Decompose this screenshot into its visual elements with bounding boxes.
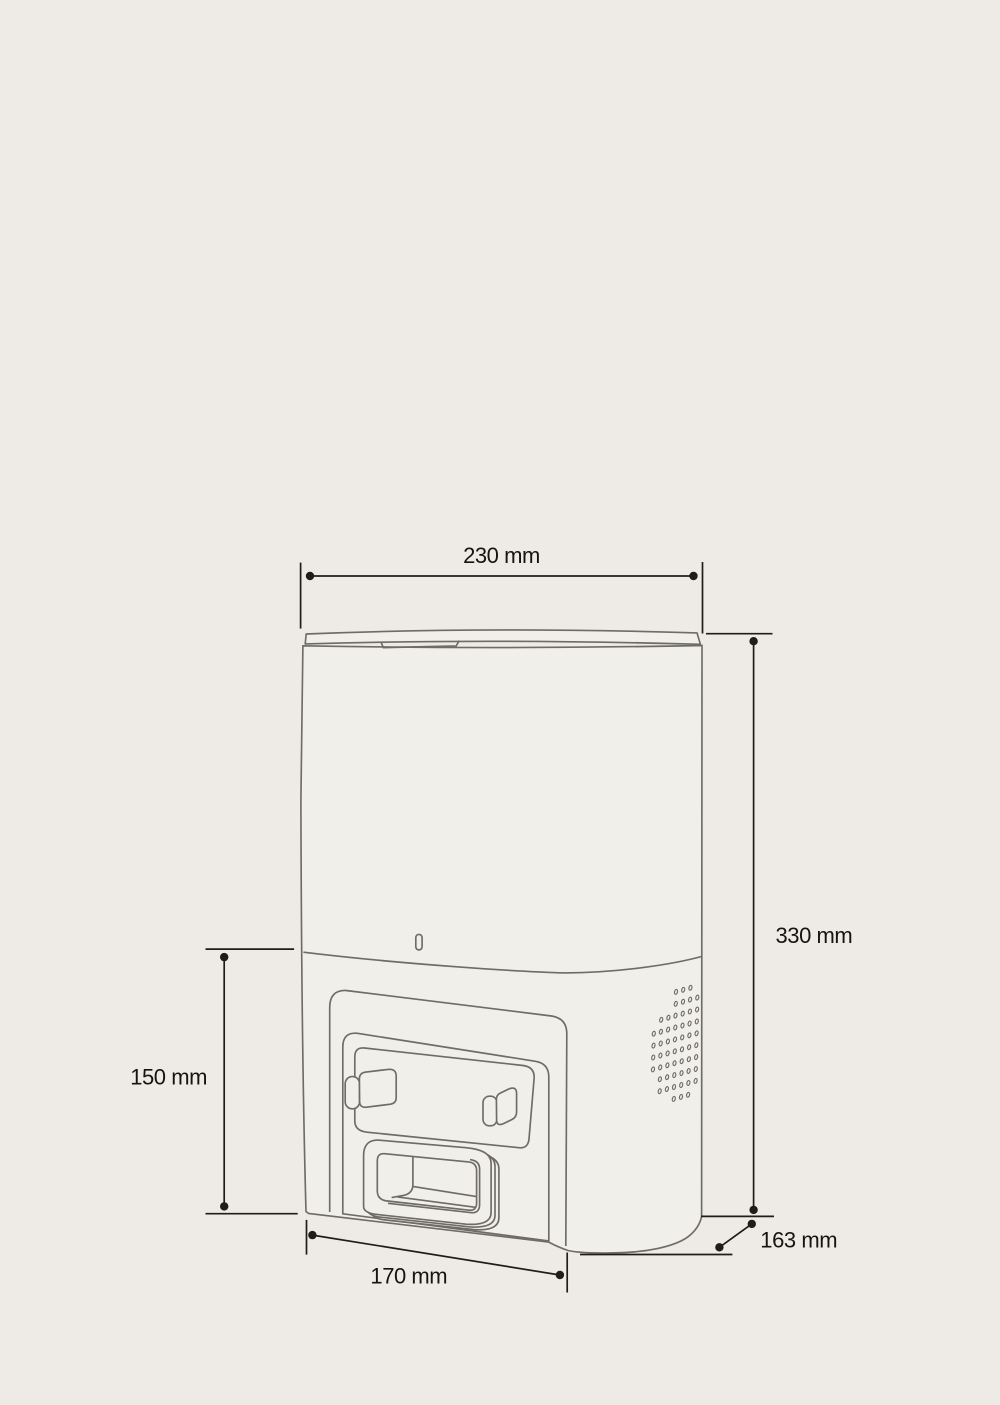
svg-text:230 mm: 230 mm (463, 543, 540, 568)
svg-text:170 mm: 170 mm (370, 1263, 447, 1288)
svg-text:163 mm: 163 mm (760, 1228, 837, 1253)
svg-text:150 mm: 150 mm (130, 1064, 207, 1089)
svg-text:330 mm: 330 mm (776, 923, 853, 948)
